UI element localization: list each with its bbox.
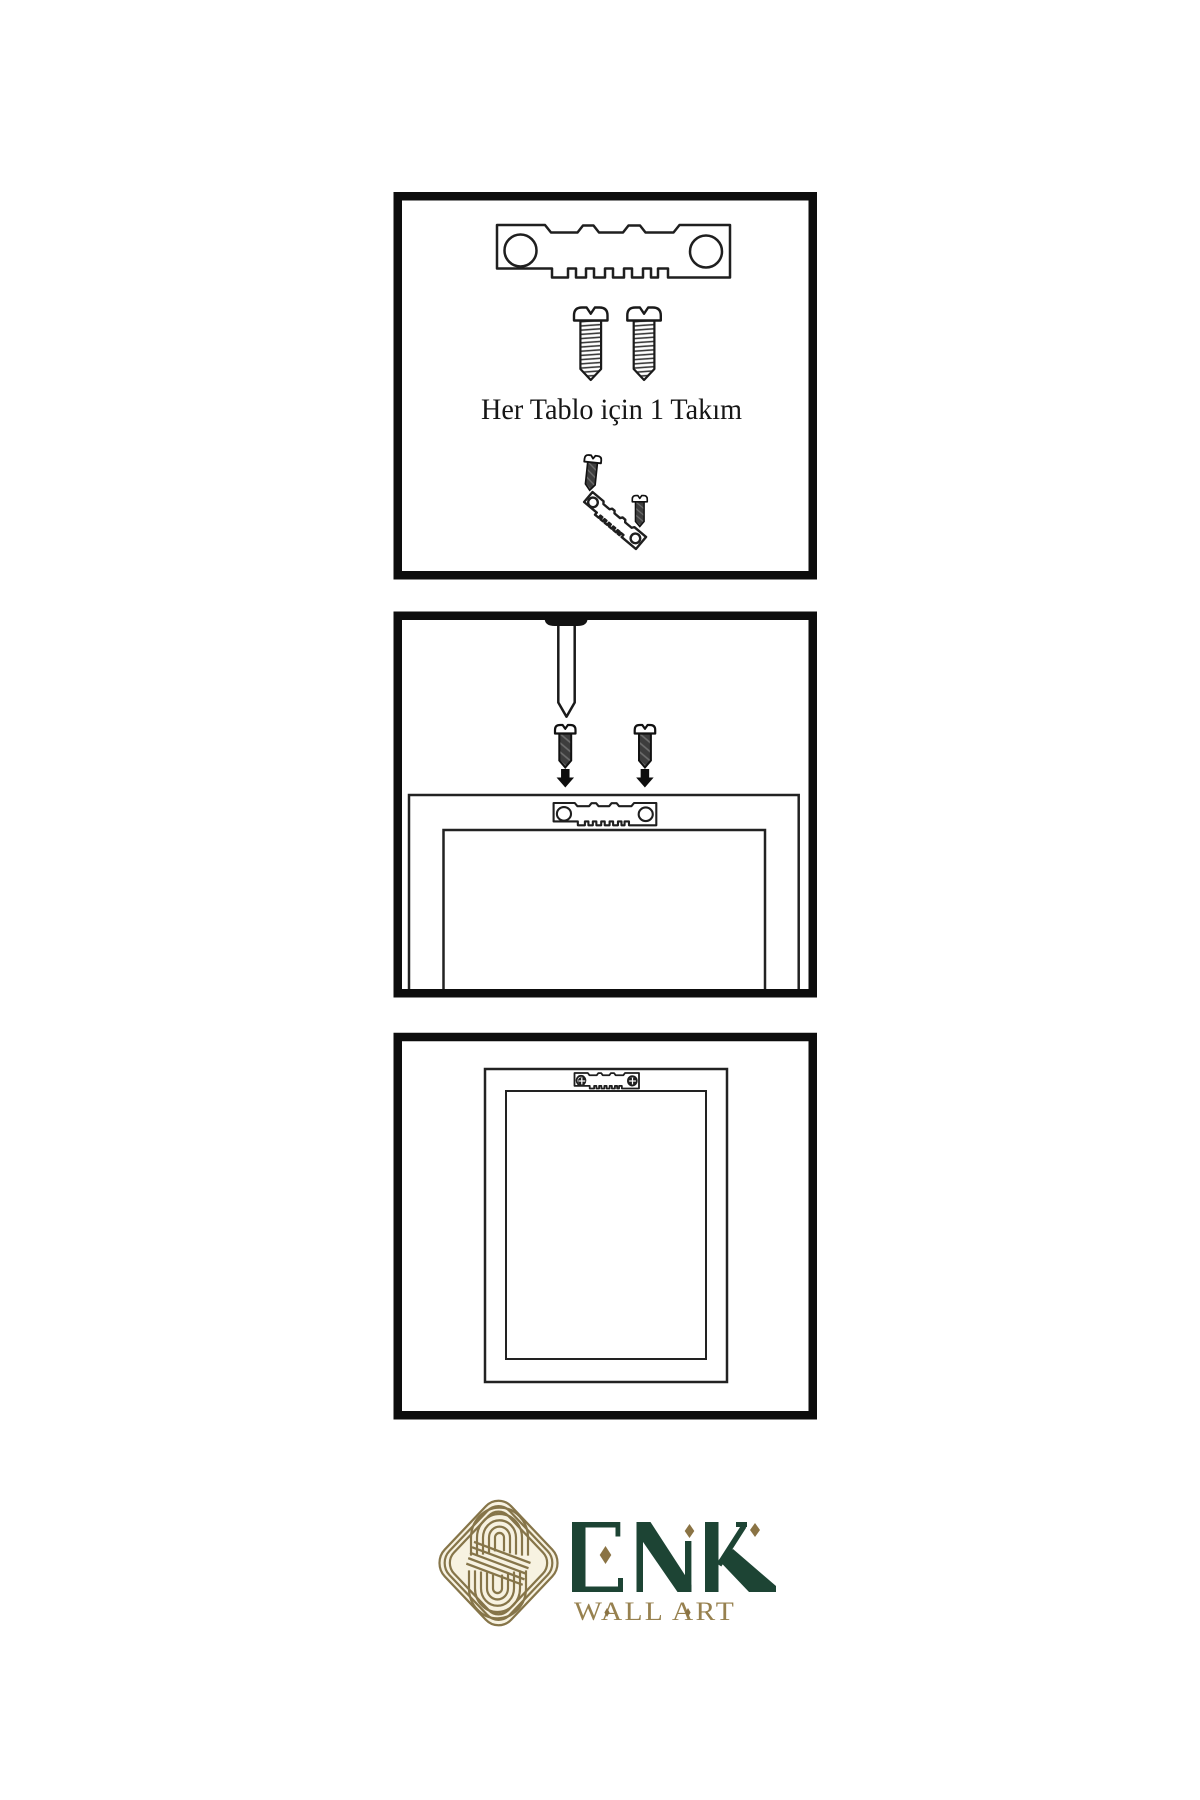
svg-text:Her Tablo için 1 Takım: Her Tablo için 1 Takım: [481, 393, 742, 426]
svg-text:WALL ART: WALL ART: [574, 1596, 736, 1626]
